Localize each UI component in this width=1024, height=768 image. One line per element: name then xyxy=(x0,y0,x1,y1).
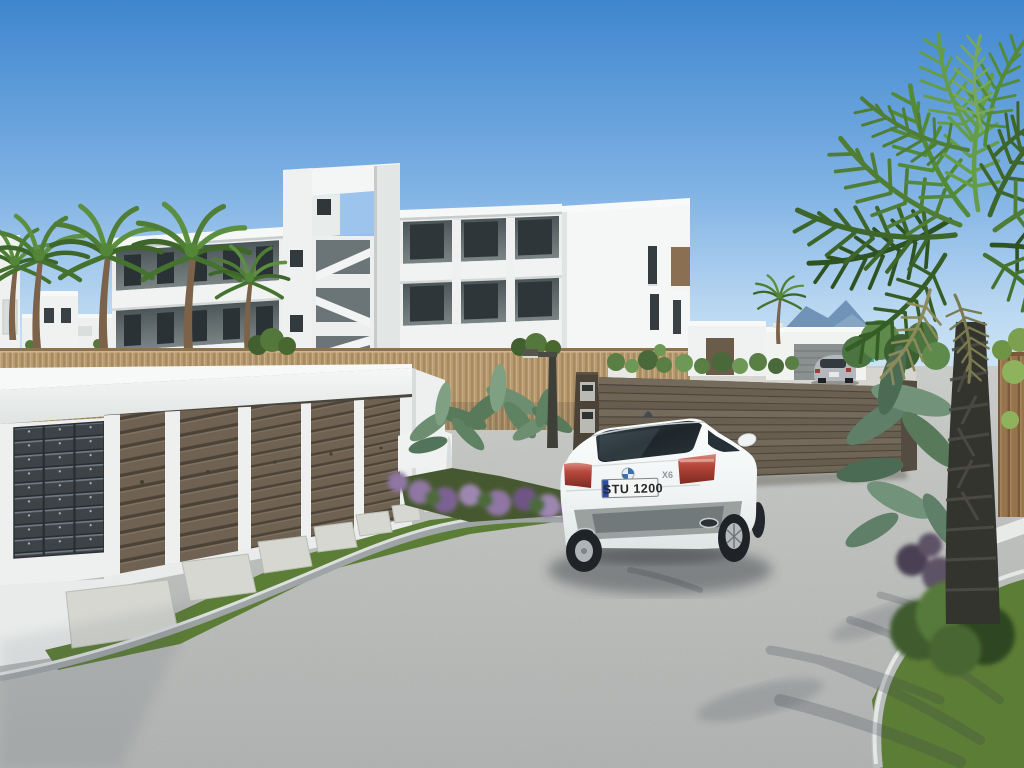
rear-wheel-right xyxy=(718,514,750,562)
architectural-render: X6 STU 1200 xyxy=(0,0,1024,768)
model-badge: X6 xyxy=(662,470,673,480)
taillight-right xyxy=(678,454,716,484)
license-plate: STU 1200 xyxy=(602,478,664,498)
exhaust-right xyxy=(700,519,718,528)
license-plate-text: STU 1200 xyxy=(603,481,664,497)
mailbox-bank xyxy=(14,422,104,558)
rear-wheel-left xyxy=(566,530,602,572)
balcony-doors-row-1 xyxy=(410,219,552,259)
taillight-left xyxy=(564,463,592,488)
staircase-tower xyxy=(283,163,400,362)
bmw-roundel-icon xyxy=(622,468,634,480)
balcony-doors-row-2 xyxy=(410,281,552,321)
apartment-right-wing xyxy=(400,204,562,352)
